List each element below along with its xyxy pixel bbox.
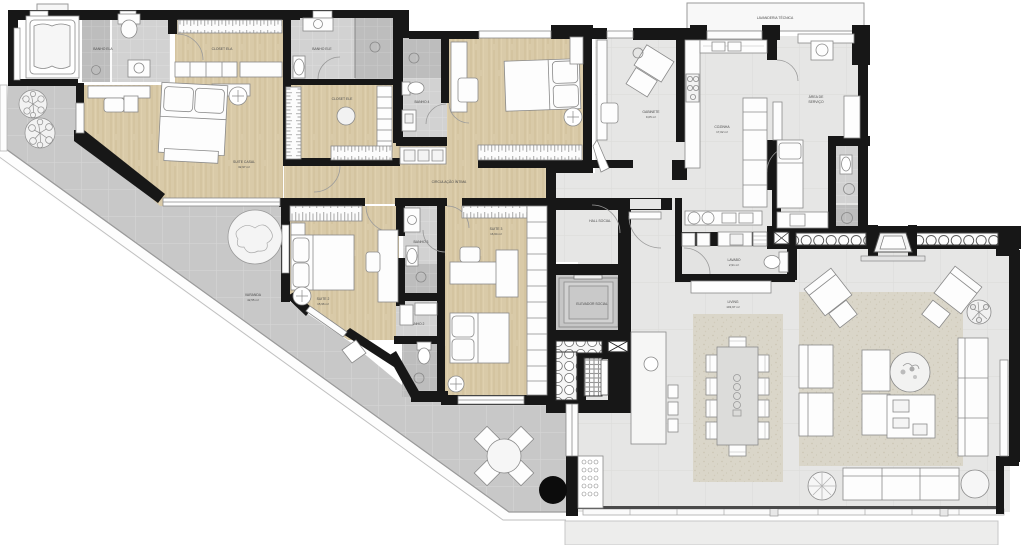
svg-text:BANHO 3: BANHO 3 bbox=[414, 240, 429, 244]
svg-text:32,97 m²: 32,97 m² bbox=[238, 165, 250, 169]
svg-text:HALL SOCIAL: HALL SOCIAL bbox=[589, 219, 611, 223]
svg-text:LAVABO: LAVABO bbox=[727, 258, 740, 262]
svg-text:CLOSET ELA: CLOSET ELA bbox=[212, 47, 234, 51]
svg-text:ELEVADOR SOCIAL: ELEVADOR SOCIAL bbox=[576, 302, 608, 306]
svg-text:LIVING: LIVING bbox=[727, 300, 738, 304]
svg-text:LAVANDERIA TÉCNICA: LAVANDERIA TÉCNICA bbox=[757, 15, 794, 20]
svg-text:9,05 m²: 9,05 m² bbox=[646, 115, 656, 119]
svg-text:SERVIÇO: SERVIÇO bbox=[808, 100, 824, 104]
svg-text:BANHO ELE: BANHO ELE bbox=[312, 47, 332, 51]
svg-text:17,02 m²: 17,02 m² bbox=[716, 130, 728, 134]
svg-text:42,55 m²: 42,55 m² bbox=[247, 298, 259, 302]
svg-text:VARANDA: VARANDA bbox=[245, 293, 262, 297]
svg-text:2,91 m²: 2,91 m² bbox=[729, 263, 739, 267]
svg-text:16,64 m²: 16,64 m² bbox=[490, 232, 502, 236]
svg-text:COZINHA: COZINHA bbox=[714, 125, 730, 129]
svg-text:GABINETE: GABINETE bbox=[642, 110, 660, 114]
svg-text:SUITE 2: SUITE 2 bbox=[317, 297, 330, 301]
svg-text:15,96 m²: 15,96 m² bbox=[317, 302, 329, 306]
svg-text:CIRCULAÇÃO ÍNTIMA: CIRCULAÇÃO ÍNTIMA bbox=[432, 179, 467, 184]
svg-text:SUITE CASAL: SUITE CASAL bbox=[233, 160, 255, 164]
svg-text:CLOSET ELE: CLOSET ELE bbox=[332, 97, 354, 101]
svg-text:SUITE 3: SUITE 3 bbox=[490, 227, 503, 231]
svg-text:BANHO 4: BANHO 4 bbox=[415, 100, 430, 104]
svg-text:103,97 m²: 103,97 m² bbox=[726, 305, 740, 309]
svg-text:BANHO ELA: BANHO ELA bbox=[93, 47, 113, 51]
svg-text:ÁREA DE: ÁREA DE bbox=[809, 95, 824, 99]
